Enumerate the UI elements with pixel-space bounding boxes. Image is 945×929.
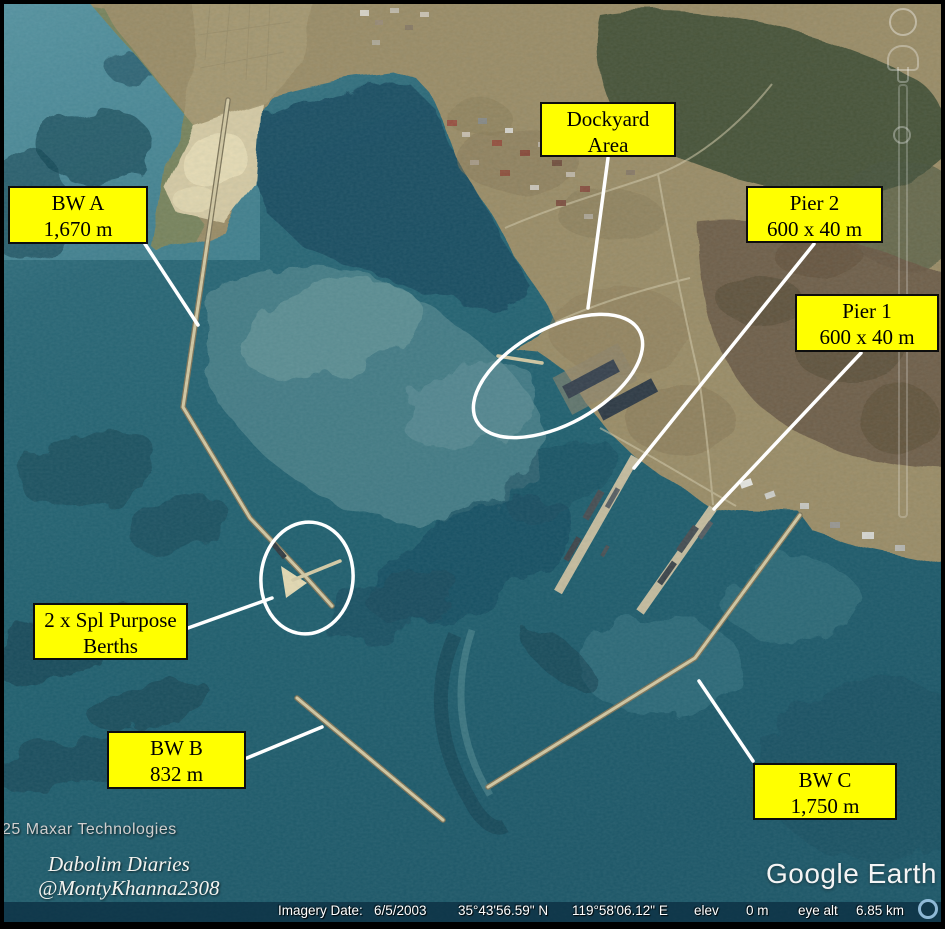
- longitude-readout: 119°58'06.12" E: [572, 903, 668, 918]
- google-earth-logo: Google Earth: [766, 858, 937, 890]
- imagery-provider-attribution: 25 Maxar Technologies: [2, 821, 177, 839]
- imagery-date-value: 6/5/2003: [374, 903, 427, 918]
- author-watermark-line2: @MontyKhanna2308: [38, 876, 219, 900]
- look-joystick-icon[interactable]: [889, 8, 917, 36]
- imagery-streaming-indicator-icon: [918, 899, 938, 919]
- label-line: 832 m: [109, 761, 244, 787]
- label-line: Berths: [35, 633, 186, 659]
- label-line: BW C: [755, 767, 895, 793]
- bottom-black-strip: [0, 922, 945, 929]
- label-line: Pier 2: [748, 190, 881, 216]
- label-line: BW B: [109, 735, 244, 761]
- status-bar: Imagery Date: 6/5/2003 35°43'56.59" N 11…: [0, 902, 945, 922]
- eye-altitude-value: 6.85 km: [856, 903, 904, 918]
- label-line: 2 x Spl Purpose: [35, 607, 186, 633]
- label-line: 1,670 m: [10, 216, 146, 242]
- label-line: Dockyard: [542, 106, 674, 132]
- zoom-slider-handle[interactable]: [893, 126, 911, 144]
- label-line: 600 x 40 m: [748, 216, 881, 242]
- eye-altitude-label: eye alt: [798, 903, 838, 918]
- author-watermark: Dabolim Diaries @MontyKhanna2308: [48, 852, 219, 900]
- callout-label-bw-c: BW C 1,750 m: [753, 763, 897, 820]
- elevation-value: 0 m: [746, 903, 769, 918]
- callout-label-bw-b: BW B 832 m: [107, 731, 246, 789]
- label-line: Pier 1: [797, 298, 937, 324]
- callout-label-dockyard-area: Dockyard Area: [540, 102, 676, 157]
- imagery-date-label: Imagery Date:: [278, 903, 363, 918]
- author-watermark-line1: Dabolim Diaries: [48, 852, 219, 876]
- label-line: BW A: [10, 190, 146, 216]
- latitude-readout: 35°43'56.59" N: [458, 903, 548, 918]
- callout-label-pier-1: Pier 1 600 x 40 m: [795, 294, 939, 352]
- callout-label-pier-2: Pier 2 600 x 40 m: [746, 186, 883, 243]
- label-line: 1,750 m: [755, 793, 895, 819]
- callout-label-spl-purpose-berths: 2 x Spl Purpose Berths: [33, 603, 188, 660]
- google-earth-viewport[interactable]: BW A 1,670 m Dockyard Area Pier 2 600 x …: [0, 0, 945, 929]
- elevation-label: elev: [694, 903, 719, 918]
- label-line: Area: [542, 132, 674, 158]
- move-joystick-icon[interactable]: [887, 45, 919, 71]
- callout-label-bw-a: BW A 1,670 m: [8, 186, 148, 244]
- label-line: 600 x 40 m: [797, 324, 937, 350]
